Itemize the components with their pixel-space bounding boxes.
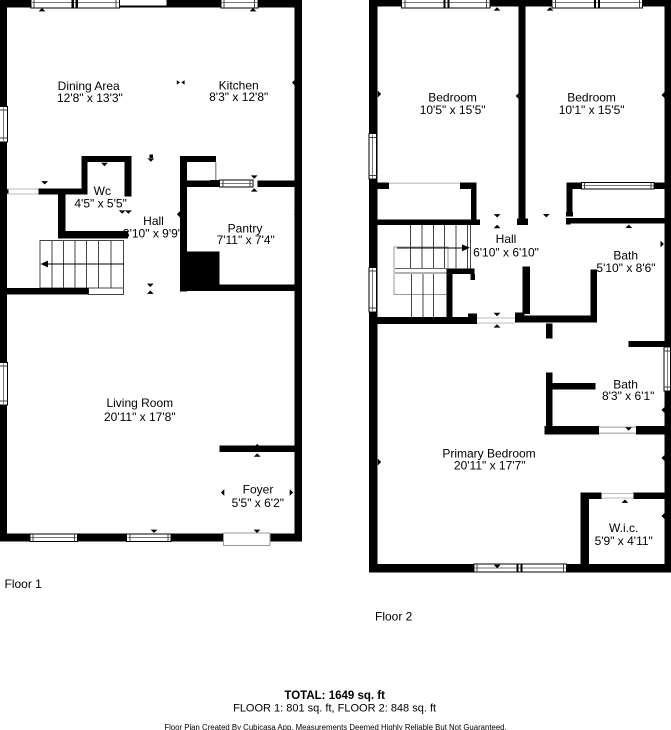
svg-text:12'8" x 13'3": 12'8" x 13'3" [57,91,123,105]
svg-text:4'5" x 5'5": 4'5" x 5'5" [74,196,126,210]
svg-text:W.i.c.: W.i.c. [609,521,638,535]
svg-text:8'3" x 12'8": 8'3" x 12'8" [209,90,268,104]
svg-text:Floor Plan Created By Cubicasa: Floor Plan Created By Cubicasa App. Meas… [164,723,506,730]
svg-text:Living Room: Living Room [106,396,173,410]
svg-text:5'10" x 8'6": 5'10" x 8'6" [596,261,655,275]
svg-text:20'11" x 17'7": 20'11" x 17'7" [454,459,526,473]
svg-text:Hall: Hall [496,232,517,246]
svg-text:6'10" x 6'10": 6'10" x 6'10" [473,246,539,260]
svg-text:Floor 2: Floor 2 [375,610,413,624]
svg-text:TOTAL: 1649 sq. ft: TOTAL: 1649 sq. ft [284,690,385,702]
svg-text:5'9" x 4'11": 5'9" x 4'11" [595,534,653,548]
svg-text:20'11" x 17'8": 20'11" x 17'8" [104,410,176,424]
svg-text:Floor 1: Floor 1 [5,577,43,591]
svg-text:10'1" x 15'5": 10'1" x 15'5" [559,103,625,117]
svg-text:Foyer: Foyer [243,483,274,497]
svg-text:5'5" x 6'2": 5'5" x 6'2" [232,496,284,510]
svg-text:3'10" x 9'9": 3'10" x 9'9" [123,227,182,241]
svg-text:10'5" x 15'5": 10'5" x 15'5" [420,103,486,117]
svg-text:8'3" x 6'1": 8'3" x 6'1" [602,389,654,403]
svg-text:FLOOR 1: 801 sq. ft, FLOOR 2:: FLOOR 1: 801 sq. ft, FLOOR 2: 848 sq. ft [233,703,436,715]
svg-text:7'11" x 7'4": 7'11" x 7'4" [217,233,275,247]
